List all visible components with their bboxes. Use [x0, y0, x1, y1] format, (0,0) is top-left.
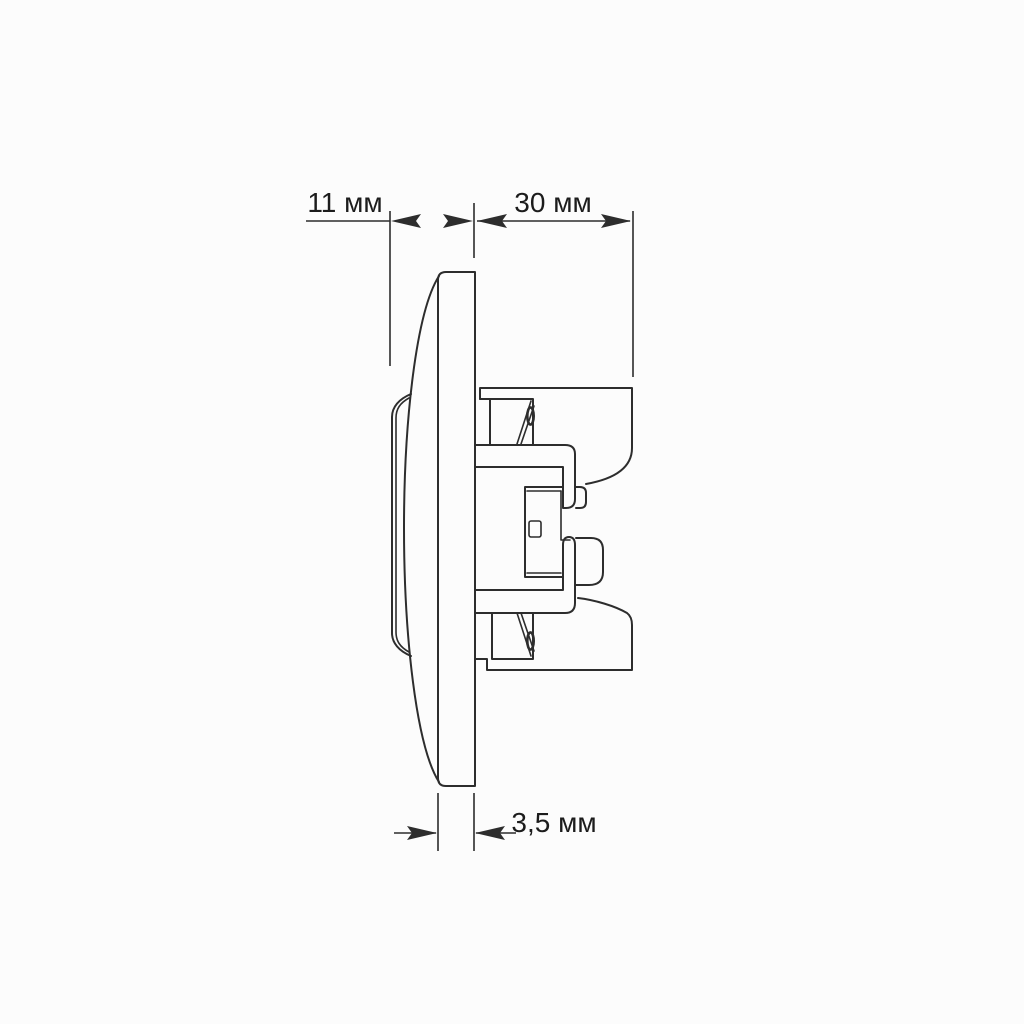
latch-block-clip [529, 521, 541, 537]
arrowhead-left [391, 214, 421, 228]
rocker-curve-profile [404, 276, 439, 782]
arrowhead-right [443, 214, 473, 228]
drawing-page: 11 мм 30 мм 3,5 мм [0, 0, 1024, 1024]
mounting-claw-top [480, 399, 533, 445]
terminal-barrel-bottom [576, 538, 603, 585]
dimension-label-faceplate-thickness: 3,5 мм [511, 807, 596, 838]
switch-side-profile [392, 272, 632, 786]
faceplate-profile [438, 272, 475, 786]
dimension-label-front-protrusion: 11 мм [307, 187, 382, 218]
terminal-tab-top [576, 487, 586, 508]
dimension-label-recessed-depth: 30 мм [514, 187, 591, 218]
mechanism-housing-top [480, 388, 632, 484]
technical-drawing-canvas: 11 мм 30 мм 3,5 мм [0, 0, 1024, 1024]
dimension-recessed-depth: 30 мм [477, 187, 631, 228]
dimension-annotations: 11 мм 30 мм 3,5 мм [306, 187, 633, 851]
latch-block [525, 487, 563, 577]
dimension-faceplate-thickness: 3,5 мм [394, 807, 597, 840]
